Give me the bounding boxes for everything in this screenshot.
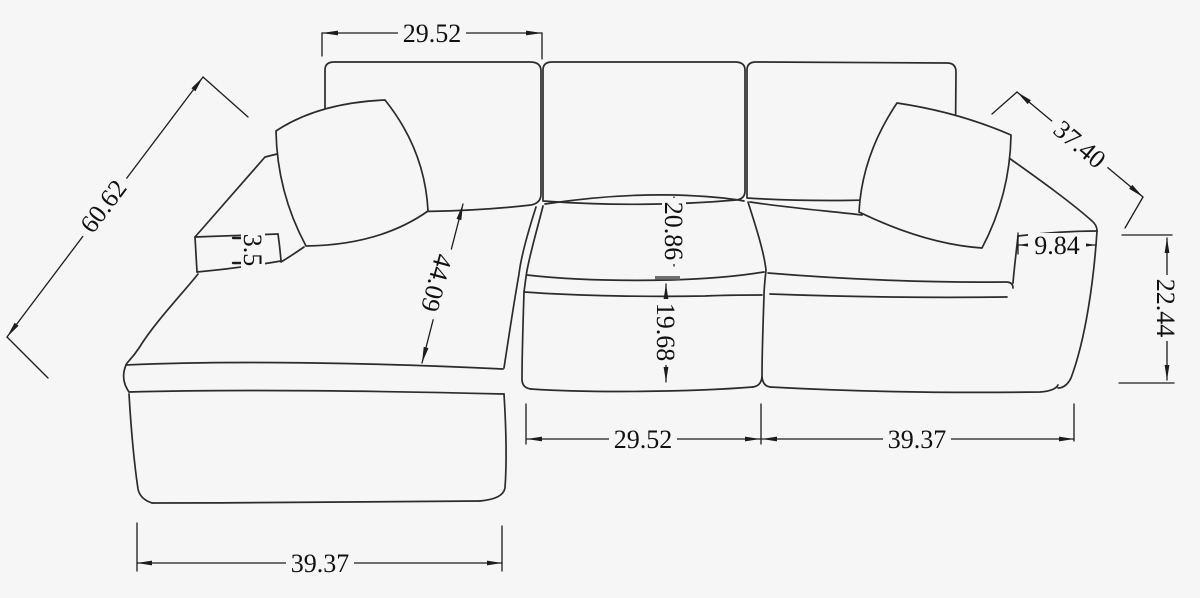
- arrowhead-icon: [526, 31, 542, 36]
- dim-side-height: 22.44: [1119, 235, 1180, 383]
- dim-base-height: 19.68: [651, 284, 680, 382]
- arrowhead-icon: [322, 31, 338, 36]
- dim-chaise-width: 39.37: [137, 523, 502, 578]
- left-arm-right-edge: [278, 234, 281, 261]
- right-cushion-front-bottom: [770, 294, 1007, 297]
- left-arm-top-slope: [195, 154, 277, 237]
- chaise-cushion-left-cap: [124, 365, 129, 392]
- arrowhead-icon: [191, 77, 203, 91]
- dim-label-arm-thickness: 3.5: [238, 234, 267, 267]
- arrowhead-icon: [1165, 238, 1170, 253]
- chaise-base-bottom: [152, 501, 480, 503]
- dim-label-right-seat-width: 39.37: [888, 425, 947, 454]
- arrowhead-icon: [487, 561, 502, 566]
- dim-middle-seat-width: 29.52: [526, 404, 761, 454]
- dim-chaise-seat-diagonal: 44.09: [413, 204, 463, 363]
- sofa-dimension-diagram: 29.52 60.62 3.5: [0, 0, 1200, 598]
- dim-chaise-diagonal-left: 60.62: [7, 77, 248, 378]
- dim-label-middle-seat-width: 29.52: [614, 425, 673, 454]
- dim-right-seat-width: 39.37: [762, 404, 1074, 454]
- arrowhead-icon: [7, 323, 19, 337]
- back-cushion-middle: [543, 62, 745, 204]
- arrowhead-icon: [527, 437, 542, 442]
- arrowhead-icon: [664, 284, 669, 299]
- arrowhead-icon: [1017, 92, 1031, 104]
- chaise-base-left: [129, 394, 152, 503]
- right-base-bottom: [770, 385, 1058, 392]
- middle-cushion-front-top: [527, 272, 764, 280]
- arrowhead-icon: [1165, 365, 1170, 380]
- chaise-base-right: [480, 394, 506, 501]
- dim-label-arm-width: 9.84: [1034, 231, 1080, 260]
- right-arm-top-slope: [1009, 158, 1097, 231]
- dim-label-base-height: 19.68: [651, 303, 680, 362]
- seam-corner-left: [753, 377, 762, 387]
- dim-datum-bar: [655, 276, 680, 280]
- dim-back-width-top: 29.52: [322, 19, 542, 59]
- dim-arm-width: 9.84: [1018, 231, 1096, 260]
- seam-chaise-cushion: [504, 207, 536, 368]
- diagram-svg: 29.52 60.62 3.5: [0, 0, 1200, 598]
- chaise-cushion-front-top: [126, 362, 503, 369]
- dim-label-seat-depth: 20.86: [659, 202, 688, 261]
- arrowhead-icon: [762, 437, 777, 442]
- chaise-left-curve: [126, 274, 198, 365]
- dim-arm-diagonal-right: 37.40: [992, 92, 1143, 228]
- arrowhead-icon: [457, 204, 464, 220]
- dimension-annotations: 29.52 60.62 3.5: [7, 19, 1180, 578]
- arrowhead-icon: [664, 367, 669, 382]
- throw-pillow-left: [276, 100, 428, 246]
- dim-seat-depth: 20.86: [655, 197, 688, 280]
- dim-arm-front-thickness: 3.5: [233, 228, 267, 272]
- left-arm-left-edge: [195, 237, 197, 272]
- middle-cushion-front-bottom: [524, 292, 762, 296]
- right-cushion-front-top: [768, 273, 1013, 288]
- arrowhead-icon: [422, 347, 429, 363]
- arrowhead-icon: [1129, 185, 1143, 197]
- arrowhead-icon: [137, 561, 152, 566]
- arrowhead-icon: [1059, 437, 1074, 442]
- seam-corner-right: [762, 377, 770, 387]
- middle-base-bottom: [531, 387, 753, 391]
- dim-extension-line: [992, 92, 1143, 228]
- pillow-seat-joint: [281, 247, 304, 262]
- throw-pillow-right: [859, 103, 1011, 248]
- seat-edge-right: [750, 202, 862, 215]
- chaise-cushion-front-bottom: [129, 391, 504, 394]
- seam-middle-base-left: [522, 206, 543, 389]
- dim-extension-line: [7, 77, 248, 378]
- dim-label-chaise-seat-diagonal: 44.09: [415, 251, 458, 315]
- seam-middle-right: [748, 202, 766, 377]
- dim-label-side-height: 22.44: [1151, 279, 1180, 338]
- arrowhead-icon: [745, 437, 760, 442]
- dim-label-back-width-top: 29.52: [403, 19, 462, 48]
- right-arm-inner-edge: [1013, 236, 1018, 283]
- dim-label-chaise-width: 39.37: [291, 549, 350, 578]
